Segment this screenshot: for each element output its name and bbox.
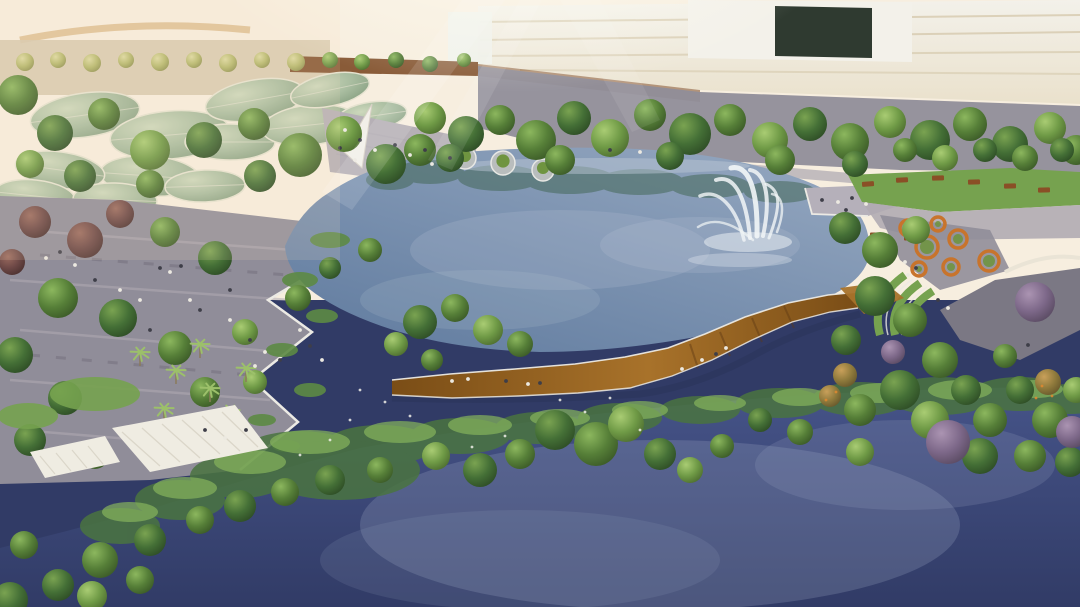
person — [278, 358, 282, 362]
bench — [932, 175, 944, 180]
orange-flower — [1041, 385, 1044, 388]
tree — [1006, 376, 1034, 404]
white-flower — [349, 419, 352, 422]
person — [248, 338, 252, 342]
palm-crown — [175, 369, 178, 372]
tree — [473, 315, 503, 345]
tree — [232, 319, 258, 345]
orange-flower — [1051, 395, 1054, 398]
tree — [271, 478, 299, 506]
tree — [926, 420, 970, 464]
palm-crown — [163, 407, 166, 410]
water-shine — [320, 510, 720, 607]
person — [864, 202, 868, 206]
tree — [710, 434, 734, 458]
white-flower — [504, 435, 507, 438]
person — [138, 298, 142, 302]
person — [724, 346, 728, 350]
person — [179, 264, 183, 268]
person — [228, 288, 232, 292]
tree — [422, 442, 450, 470]
tree — [787, 419, 813, 445]
tree — [932, 145, 958, 171]
tree — [367, 457, 393, 483]
fountain-mist — [704, 232, 792, 252]
tree — [126, 566, 154, 594]
person — [320, 358, 324, 362]
tree — [973, 138, 997, 162]
person — [526, 382, 530, 386]
tree — [10, 531, 38, 559]
tree — [829, 212, 861, 244]
person — [946, 306, 950, 310]
person — [680, 367, 684, 371]
white-flower — [609, 397, 612, 400]
tree — [677, 457, 703, 483]
white-flower — [584, 411, 587, 414]
person — [903, 260, 907, 264]
planter-planting — [947, 263, 955, 271]
orange-flower — [1035, 397, 1038, 400]
tree — [421, 349, 443, 371]
tree — [881, 340, 905, 364]
planter-planting — [953, 234, 963, 244]
tree — [953, 107, 987, 141]
person — [158, 266, 162, 270]
tree — [403, 305, 437, 339]
tree — [973, 403, 1007, 437]
person — [906, 273, 910, 277]
person — [844, 208, 848, 212]
person — [244, 428, 248, 432]
tree — [880, 370, 920, 410]
tree — [315, 465, 345, 495]
tree — [842, 151, 868, 177]
tree — [507, 331, 533, 357]
tree — [441, 294, 469, 322]
grass-patch — [50, 377, 140, 411]
tree — [833, 363, 857, 387]
tree — [99, 299, 137, 337]
tree — [319, 257, 341, 279]
white-flower — [471, 446, 474, 449]
planter-planting — [983, 255, 995, 267]
tree — [644, 438, 676, 470]
tree — [793, 107, 827, 141]
bench — [968, 179, 980, 184]
planter-planting — [935, 221, 941, 227]
person — [223, 436, 227, 440]
tree — [186, 506, 214, 534]
tree — [831, 325, 861, 355]
tree — [38, 278, 78, 318]
tree — [844, 394, 876, 426]
white-flower — [329, 439, 332, 442]
tree — [951, 375, 981, 405]
tree — [608, 406, 644, 442]
tree — [862, 232, 898, 268]
person — [450, 379, 454, 383]
person — [1026, 343, 1030, 347]
fountain-reflection — [688, 253, 792, 267]
person — [168, 270, 172, 274]
person — [820, 198, 824, 202]
person — [836, 200, 840, 204]
person — [198, 308, 202, 312]
tree — [505, 439, 535, 469]
tree — [82, 542, 118, 578]
person — [308, 344, 312, 348]
person — [93, 278, 97, 282]
tree — [765, 145, 795, 175]
tree — [874, 106, 906, 138]
tree — [358, 238, 382, 262]
tree — [748, 408, 772, 432]
white-flower — [409, 415, 412, 418]
tree — [993, 344, 1017, 368]
person — [118, 288, 122, 292]
white-flower — [639, 429, 642, 432]
palm-crown — [199, 343, 202, 346]
person — [188, 298, 192, 302]
person — [914, 266, 918, 270]
tree — [1014, 440, 1046, 472]
tree — [285, 285, 311, 311]
person — [298, 328, 302, 332]
tree — [535, 410, 575, 450]
tree — [1035, 369, 1061, 395]
person — [263, 350, 267, 354]
white-flower — [299, 454, 302, 457]
palm-crown — [245, 367, 248, 370]
person — [714, 352, 718, 356]
scene-svg — [0, 0, 1080, 607]
orange-flower — [825, 399, 828, 402]
park-rendering — [0, 0, 1080, 607]
tree — [1050, 138, 1074, 162]
orange-flower — [835, 391, 838, 394]
tree — [846, 438, 874, 466]
palm-crown — [209, 387, 212, 390]
person — [700, 358, 704, 362]
person — [850, 196, 854, 200]
person — [936, 298, 940, 302]
person — [253, 364, 257, 368]
person — [73, 263, 77, 267]
person — [466, 377, 470, 381]
tree — [42, 569, 74, 601]
person — [148, 328, 152, 332]
palm-crown — [139, 351, 142, 354]
tree — [1012, 145, 1038, 171]
tree — [224, 490, 256, 522]
tree — [922, 342, 958, 378]
tree — [463, 453, 497, 487]
tree — [384, 332, 408, 356]
tree — [893, 303, 927, 337]
person — [504, 379, 508, 383]
person — [203, 428, 207, 432]
person — [228, 318, 232, 322]
tree — [1015, 282, 1055, 322]
tree — [819, 385, 841, 407]
tree — [134, 524, 166, 556]
white-flower — [359, 389, 362, 392]
tree — [855, 276, 895, 316]
bench — [1004, 183, 1016, 188]
white-flower — [384, 401, 387, 404]
tree — [893, 138, 917, 162]
bench — [896, 177, 908, 183]
bench — [1038, 187, 1050, 192]
grass-patch — [0, 403, 58, 429]
bench — [862, 181, 874, 187]
person — [538, 381, 542, 385]
white-flower — [559, 399, 562, 402]
tree — [902, 216, 930, 244]
tree — [158, 331, 192, 365]
